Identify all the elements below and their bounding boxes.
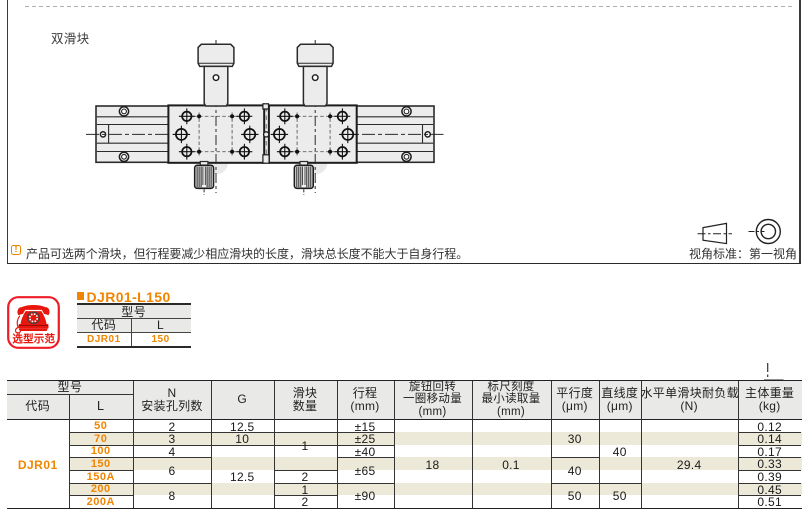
svg-text:选型示范: 选型示范 xyxy=(12,332,55,345)
